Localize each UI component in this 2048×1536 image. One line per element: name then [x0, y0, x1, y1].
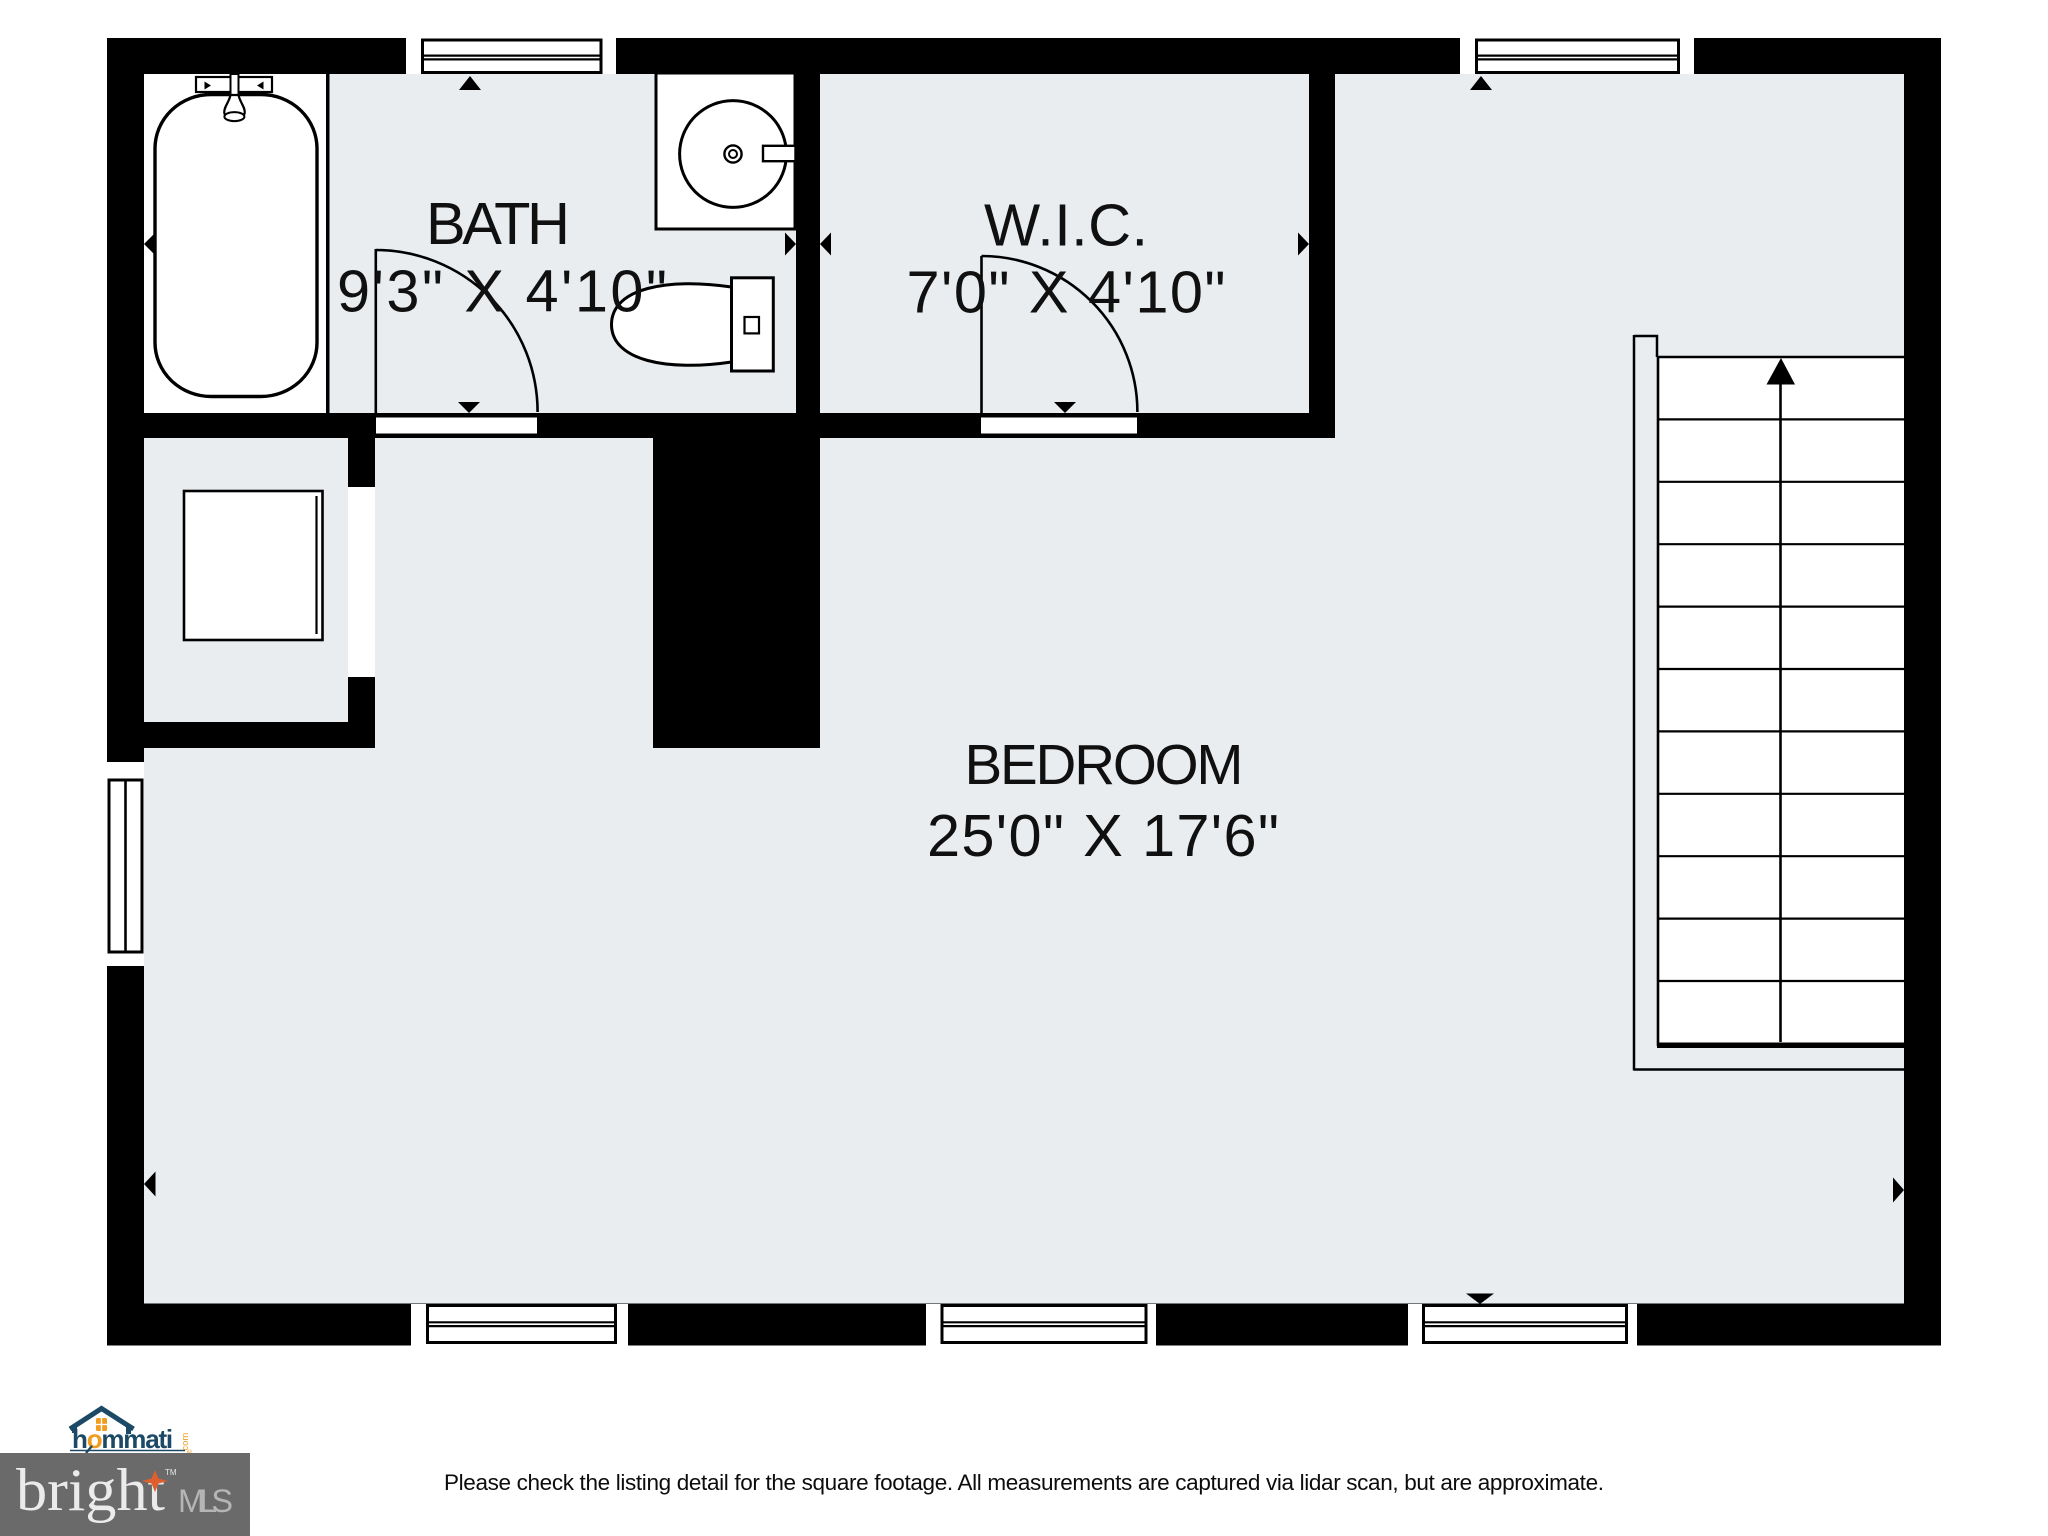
svg-text:hommati: hommati — [72, 1424, 172, 1454]
svg-text:9'3" X 4'10": 9'3" X 4'10" — [337, 258, 667, 325]
svg-text:bright: bright — [16, 1457, 165, 1523]
svg-text:BEDROOM: BEDROOM — [965, 733, 1244, 796]
svg-text:TM: TM — [165, 1468, 177, 1477]
svg-text:Please check the listing detai: Please check the listing detail for the … — [444, 1470, 1604, 1495]
svg-text:MLS: MLS — [178, 1483, 233, 1519]
svg-text:W.I.C.: W.I.C. — [984, 192, 1148, 259]
svg-text:25'0" X 17'6": 25'0" X 17'6" — [927, 802, 1279, 869]
svg-text:7'0" X 4'10": 7'0" X 4'10" — [907, 259, 1226, 326]
svg-text:BATH: BATH — [426, 190, 570, 257]
